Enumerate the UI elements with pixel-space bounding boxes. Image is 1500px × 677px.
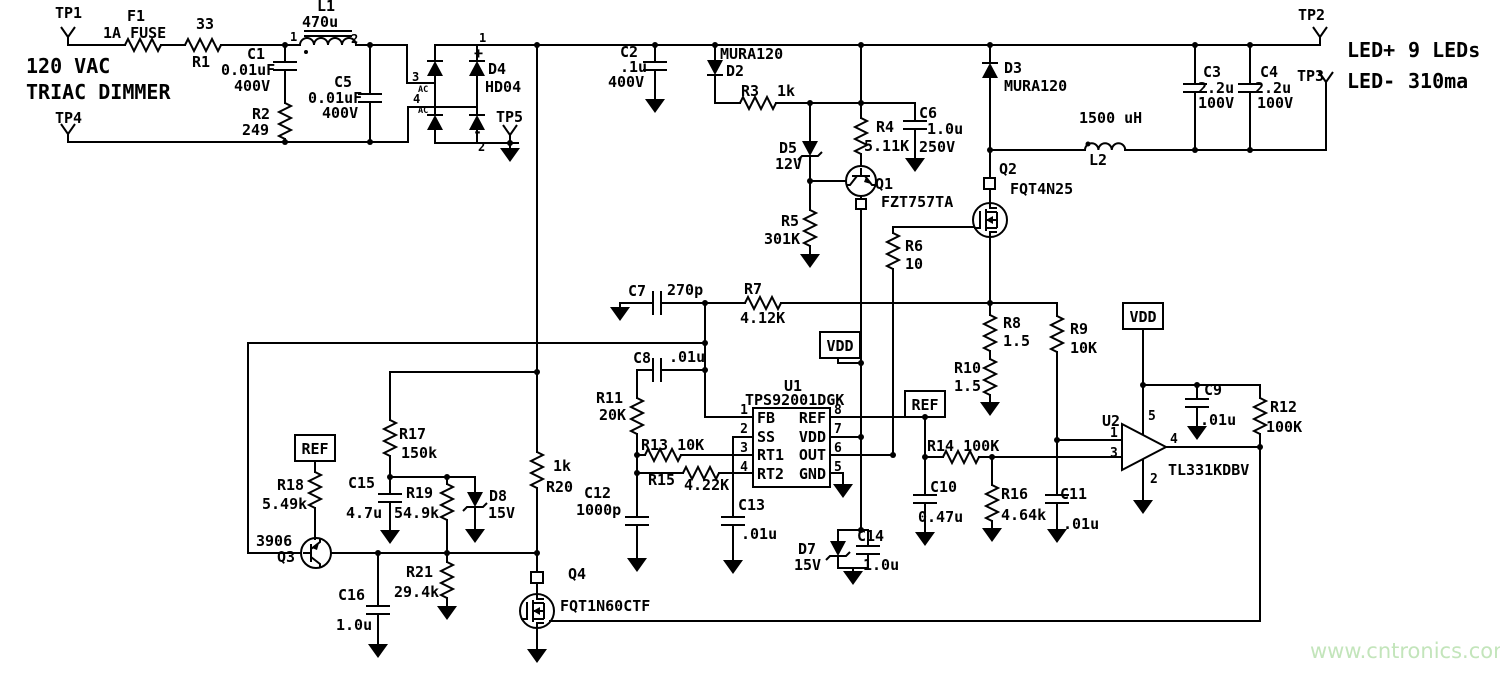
resistor-r21 [441, 562, 453, 598]
capacitor-c13 [721, 517, 745, 525]
capacitor-c15 [378, 494, 402, 502]
schematic-page: TP1 F1 1A FUSE 33 R1 120 VAC TRIAC DIMME… [0, 0, 1500, 677]
bridge-pin4: 4 [413, 92, 420, 106]
led-plus-label: LED+ [1347, 38, 1395, 62]
resistor-r10 [984, 359, 996, 395]
capacitor-c14 [856, 546, 880, 554]
resistor-r17 [384, 420, 396, 456]
u1-pin-ref: REF [799, 409, 826, 427]
labels: TP1 F1 1A FUSE 33 R1 120 VAC TRIAC DIMME… [26, 0, 1500, 663]
r5-value: 301K [764, 230, 800, 248]
resistor-r6 [887, 233, 899, 269]
r21-ref: R21 [406, 563, 433, 581]
c16-value: 1.0u [336, 616, 372, 634]
inductor-l1 [300, 38, 356, 45]
capacitor-c8 [653, 358, 661, 382]
u1-num5: 5 [834, 460, 842, 475]
f1-ref: F1 [127, 7, 145, 25]
d7-value: 15V [794, 556, 821, 574]
r12-ref: R12 [1270, 398, 1297, 416]
r11-value: 20K [599, 406, 626, 424]
led-current-label: 310ma [1408, 69, 1468, 93]
u1-num4: 4 [740, 460, 748, 475]
testpoint-tp1 [61, 27, 75, 45]
c15-value: 4.7u [346, 504, 382, 522]
r17-ref: R17 [399, 425, 426, 443]
c9-value: .01u [1200, 411, 1236, 429]
r14-label: R14 100K [927, 437, 999, 455]
l2-ref: L2 [1089, 151, 1107, 169]
resistor-r7 [745, 297, 781, 309]
c3-voltage: 100V [1198, 94, 1234, 112]
c1-voltage: 400V [234, 77, 270, 95]
r6-ref: R6 [905, 237, 923, 255]
u2-num2: 2 [1150, 472, 1158, 487]
r12-value: 100K [1266, 418, 1302, 436]
u1-num7: 7 [834, 422, 842, 437]
r7-value: 4.12K [740, 309, 785, 327]
q1-part: FZT757TA [881, 193, 953, 211]
r17-value: 150k [401, 444, 437, 462]
r9-ref: R9 [1070, 320, 1088, 338]
r1-value: 33 [196, 15, 214, 33]
transistor-q3 [301, 538, 331, 568]
c11-value: .01u [1063, 515, 1099, 533]
r4-value: 5.11K [864, 137, 909, 155]
led-minus-label: LED- [1347, 69, 1395, 93]
c10-value: 0.47u [918, 508, 963, 526]
capacitor-c6 [903, 121, 927, 129]
r20-value: 1k [553, 457, 571, 475]
source-line1: 120 VAC [26, 54, 110, 78]
inductor-l2 [1085, 143, 1125, 150]
u1-num3: 3 [740, 441, 748, 456]
l1-pin1: 1 [290, 30, 297, 44]
net-ref-2: REF [911, 396, 938, 414]
tp3-label: TP3 [1297, 67, 1324, 85]
r3-value: 1k [777, 82, 795, 100]
r8-value: 1.5 [1003, 332, 1030, 350]
tp1-label: TP1 [55, 4, 82, 22]
resistor-r12 [1254, 398, 1266, 434]
resistor-r8 [984, 315, 996, 351]
c2-voltage: 400V [608, 73, 644, 91]
c7-value: 270p [667, 281, 703, 299]
resistor-r18 [309, 472, 321, 508]
r19-ref: R19 [406, 484, 433, 502]
u2-num4: 4 [1170, 432, 1178, 447]
resistor-r5 [804, 210, 816, 246]
led-driver-schematic: TP1 F1 1A FUSE 33 R1 120 VAC TRIAC DIMME… [0, 0, 1500, 677]
r7-ref: R7 [744, 280, 762, 298]
d3-ref: D3 [1004, 59, 1022, 77]
l1-pin2: 2 [351, 32, 358, 46]
u1-pin-ss: SS [757, 428, 775, 446]
u1-num1: 1 [740, 403, 748, 418]
q4-part: FQT1N60CTF [560, 597, 650, 615]
r18-value: 5.49k [262, 495, 307, 513]
d2-part: MURA120 [720, 45, 783, 63]
source-line2: TRIAC DIMMER [26, 80, 171, 104]
net-vdd-2: VDD [1129, 308, 1156, 326]
bridge-pin2: 2 [478, 140, 485, 154]
mosfet-q4 [520, 594, 554, 628]
u1-pin-fb: FB [757, 409, 775, 427]
r21-value: 29.4k [394, 583, 439, 601]
resistor-r9 [1051, 316, 1063, 352]
r16-ref: R16 [1001, 485, 1028, 503]
bridge-minus: - [473, 123, 482, 141]
r18-ref: R18 [277, 476, 304, 494]
u2-num3: 3 [1110, 446, 1118, 461]
q3-ref: Q3 [277, 548, 295, 566]
testpoint-tp2 [1313, 27, 1327, 45]
diode-d3 [982, 63, 998, 78]
c14-value: 1.0u [863, 556, 899, 574]
r19-value: 54.9k [394, 504, 439, 522]
c9-ref: C9 [1204, 381, 1222, 399]
u1-part: TPS92001DGK [745, 391, 844, 409]
u1-pin-out: OUT [799, 446, 826, 464]
u1-pin-rt2: RT2 [757, 465, 784, 483]
r8-ref: R8 [1003, 314, 1021, 332]
r3-ref: R3 [741, 82, 759, 100]
r15-value: 4.22K [684, 476, 729, 494]
r1-ref: R1 [192, 53, 210, 71]
capacitor-c7 [653, 291, 661, 315]
u1-pin-rt1: RT1 [757, 446, 784, 464]
c7-ref: C7 [628, 282, 646, 300]
u1-num6: 6 [834, 441, 842, 456]
tp5-label: TP5 [496, 108, 523, 126]
resistor-r19 [441, 484, 453, 520]
r4-ref: R4 [876, 118, 894, 136]
led-count-label: 9 LEDs [1408, 38, 1480, 62]
r20-ref: R20 [546, 478, 573, 496]
c12-ref: C12 [584, 484, 611, 502]
r11-ref: R11 [596, 389, 623, 407]
resistor-r20 [531, 452, 543, 488]
tp2-label: TP2 [1298, 6, 1325, 24]
u1-pin-vdd: VDD [799, 428, 826, 446]
d8-value: 15V [488, 504, 515, 522]
q2-ref: Q2 [999, 160, 1017, 178]
resistor-r11 [631, 398, 643, 434]
c16-ref: C16 [338, 586, 365, 604]
d4-part: HD04 [485, 78, 521, 96]
u1-pin-gnd: GND [799, 465, 826, 483]
l2-value: 1500 uH [1079, 109, 1142, 127]
capacitor-c9 [1185, 399, 1209, 407]
c11-ref: C11 [1060, 485, 1087, 503]
c4-voltage: 100V [1257, 94, 1293, 112]
u1-num8: 8 [834, 403, 842, 418]
r13-label: R13 10K [641, 436, 704, 454]
r9-value: 10K [1070, 339, 1097, 357]
c13-value: .01u [741, 525, 777, 543]
r15-ref: R15 [648, 471, 675, 489]
resistor-r2 [279, 103, 291, 139]
bridge-pin3: 3 [412, 70, 419, 84]
q1-ref: Q1 [875, 175, 893, 193]
tp4-label: TP4 [55, 109, 82, 127]
capacitor-c10 [913, 495, 937, 503]
watermark: www.cntronics.com [1310, 639, 1500, 663]
u1-num2: 2 [740, 422, 748, 437]
u2-num5: 5 [1148, 409, 1156, 424]
c8-ref: C8 [633, 349, 651, 367]
transistor-q1 [846, 166, 876, 196]
r16-value: 4.64k [1001, 506, 1046, 524]
u2-num1: 1 [1110, 426, 1118, 441]
q2-part: FQT4N25 [1010, 180, 1073, 198]
r10-value: 1.5 [954, 377, 981, 395]
q4-ref: Q4 [568, 565, 586, 583]
c13-ref: C13 [738, 496, 765, 514]
bridge-plus: + [474, 44, 483, 62]
c5-voltage: 400V [322, 104, 358, 122]
c15-ref: C15 [348, 474, 375, 492]
f1-value: 1A FUSE [103, 24, 166, 42]
r10-ref: R10 [954, 359, 981, 377]
net-vdd-1: VDD [826, 337, 853, 355]
c10-ref: C10 [930, 478, 957, 496]
d5-value: 12V [775, 155, 802, 173]
resistor-r16 [986, 485, 998, 521]
resistor-r1 [185, 39, 221, 51]
capacitor-c12 [625, 517, 649, 525]
r2-value: 249 [242, 121, 269, 139]
u2-part: TL331KDBV [1168, 461, 1249, 479]
bridge-pin1: 1 [479, 31, 486, 45]
capacitor-c1 [273, 62, 297, 70]
c14-ref: C14 [857, 527, 884, 545]
d4-ref: D4 [488, 60, 506, 78]
bridge-ac2: AC [418, 106, 428, 116]
d8-ref: D8 [489, 487, 507, 505]
r5-ref: R5 [781, 212, 799, 230]
d3-part: MURA120 [1004, 77, 1067, 95]
c12-value: 1000p [576, 501, 621, 519]
r6-value: 10 [905, 255, 923, 273]
net-ref-1: REF [301, 440, 328, 458]
mosfet-q2 [973, 203, 1007, 237]
d2-ref: D2 [726, 62, 744, 80]
c6-value: 1.0u [927, 120, 963, 138]
l1-value: 470u [302, 13, 338, 31]
capacitor-c16 [366, 606, 390, 614]
c6-voltage: 250V [919, 138, 955, 156]
c8-value: .01u [669, 348, 705, 366]
